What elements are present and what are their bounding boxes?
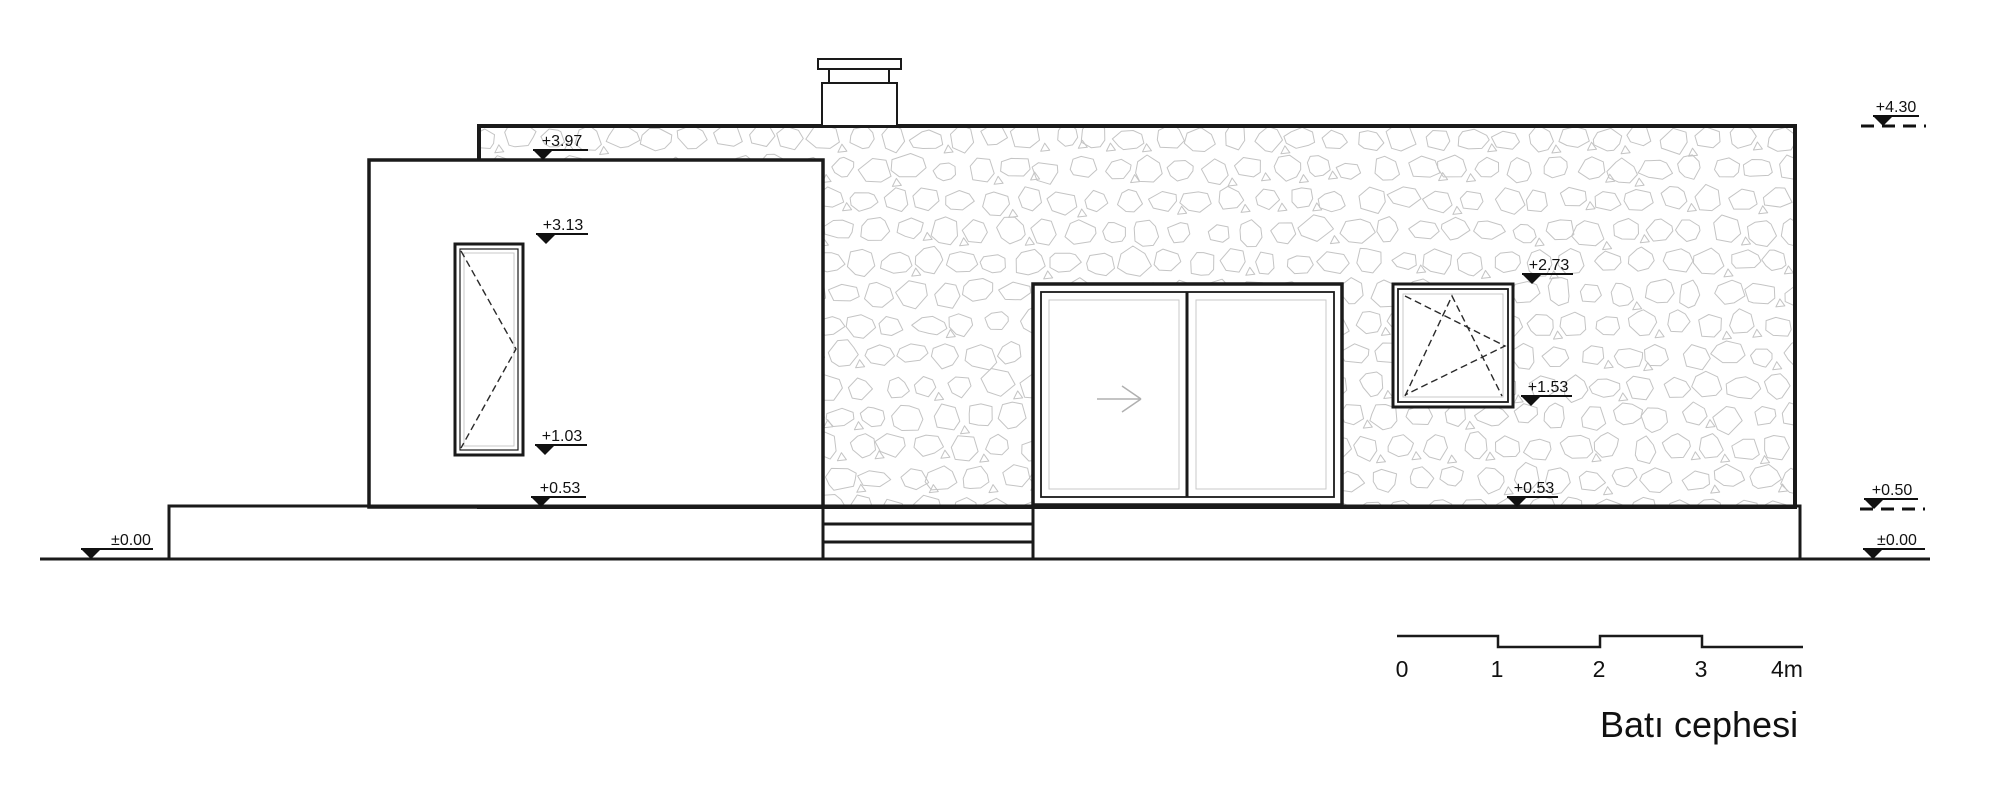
marker-label: +0.53	[540, 480, 581, 497]
marker-label: +1.03	[542, 428, 583, 445]
marker-label: +0.53	[1514, 480, 1555, 497]
marker-label: ±0.00	[1877, 532, 1917, 549]
chimney-flues	[829, 69, 889, 83]
front-volume	[369, 160, 823, 507]
plinth-outline	[169, 506, 1800, 559]
base-plinth	[169, 506, 1800, 559]
casement-window	[455, 244, 523, 455]
marker-label: +3.13	[543, 217, 584, 234]
tilt-turn-window-frame	[1393, 284, 1513, 407]
elevation-marker-terrace-level: +0.50	[1860, 482, 1925, 509]
marker-label: +3.97	[542, 133, 583, 150]
drawing-title: Batı cephesi	[1600, 704, 1798, 745]
tilt-turn-window	[1393, 284, 1513, 407]
scale-label-3: 3	[1695, 656, 1708, 682]
entry-steps	[823, 506, 1033, 559]
scale-bar: 0 1 2 3 4m	[1396, 636, 1803, 682]
sliding-door	[1033, 284, 1342, 505]
casement-window-frame	[455, 244, 523, 455]
scale-label-1: 1	[1491, 656, 1504, 682]
elevation-marker-ground-right: ±0.00	[1863, 532, 1925, 559]
elevation-marker-roof-top: +4.30	[1861, 99, 1926, 126]
marker-label: +0.50	[1872, 482, 1913, 499]
scale-bar-line	[1397, 636, 1803, 647]
scale-label-0: 0	[1396, 656, 1409, 682]
marker-label: +1.53	[1528, 379, 1569, 396]
scale-label-4m: 4m	[1771, 656, 1803, 682]
marker-label: +4.30	[1876, 99, 1917, 116]
elevation-marker-ground-left: ±0.00	[81, 532, 153, 559]
chimney	[818, 59, 901, 126]
chimney-base	[822, 83, 897, 126]
elevation-drawing: ±0.00 +3.97 +3.13 +1.03 +0.53 +2.73 +1.5…	[0, 0, 2000, 789]
scale-label-2: 2	[1593, 656, 1606, 682]
marker-label: +2.73	[1529, 257, 1570, 274]
chimney-cap	[818, 59, 901, 69]
marker-label: ±0.00	[111, 532, 151, 549]
